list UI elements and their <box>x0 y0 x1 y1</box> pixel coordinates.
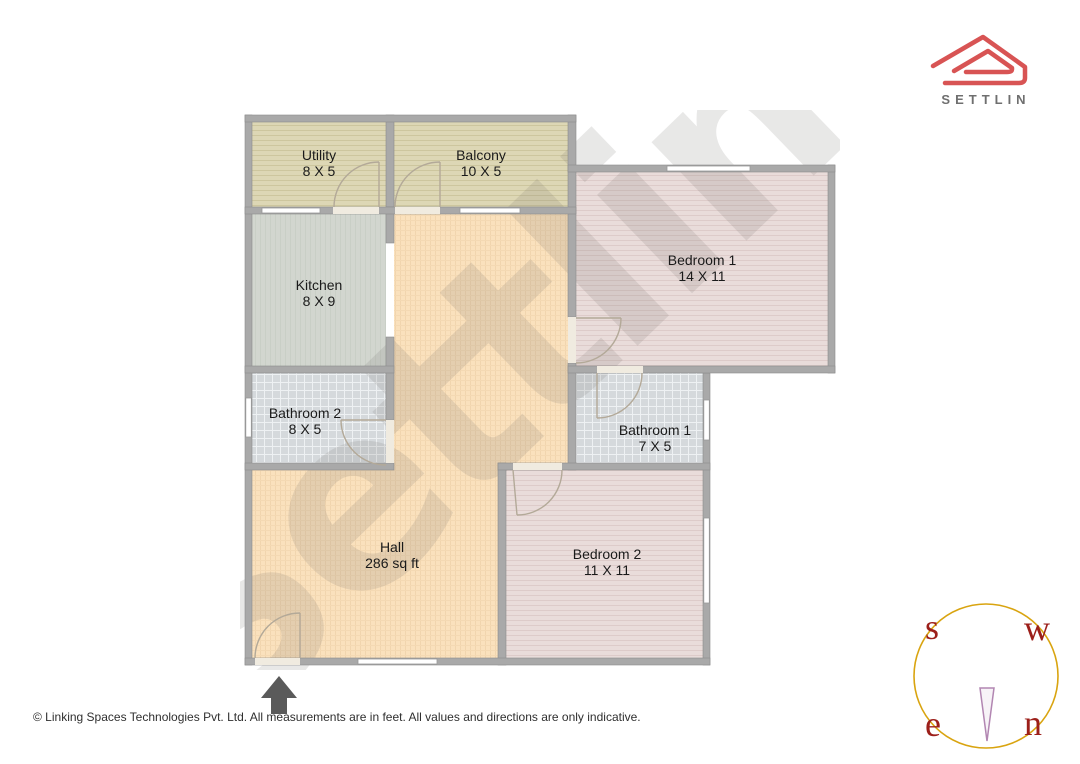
settlin-roof-logo-icon <box>930 34 1042 96</box>
label-utility-dims: 8 X 5 <box>303 163 336 179</box>
logo-outer-roof <box>933 37 1025 83</box>
wall-bedroom1-right <box>828 165 835 373</box>
door-gap-bathroom1 <box>597 366 643 373</box>
wall-corridor-right-upper <box>568 115 576 317</box>
door-gap-utility <box>333 207 379 214</box>
label-bathroom1-dims: 7 X 5 <box>639 438 672 454</box>
wall-kitchen-bottom <box>245 366 394 373</box>
wall-utility-balcony <box>386 115 394 214</box>
door-gap-bedroom1 <box>568 317 576 363</box>
label-hall-dims: 286 sq ft <box>365 555 419 571</box>
label-balcony: Balcony <box>456 147 506 163</box>
wall-bathroom2-bottom <box>245 463 394 470</box>
wall-corridor-right-lower <box>568 363 576 470</box>
label-bedroom1: Bedroom 1 <box>668 252 737 268</box>
north-arrow-shape <box>261 676 297 714</box>
compass: s w e n <box>903 593 1075 763</box>
door-gap-balcony <box>395 207 440 214</box>
label-bathroom2-dims: 8 X 5 <box>289 421 322 437</box>
door-gap-bedroom2 <box>513 463 562 470</box>
brand-name: SETTLIN <box>930 92 1042 107</box>
window-hall <box>358 659 437 664</box>
label-kitchen: Kitchen <box>296 277 343 293</box>
wall-outer-left <box>245 115 252 665</box>
wall-bathroom2-right <box>386 337 394 420</box>
door-gap-bathroom2 <box>386 420 394 463</box>
compass-needle-icon <box>980 688 994 741</box>
label-bathroom1: Bathroom 1 <box>619 422 692 438</box>
compass-letter-n: n <box>1024 703 1042 743</box>
compass-letter-e: e <box>925 704 941 744</box>
compass-letter-s: s <box>925 607 939 647</box>
wall-hall-bedroom2 <box>498 463 506 665</box>
window-bedroom2 <box>704 518 710 603</box>
compass-letter-w: w <box>1024 608 1050 648</box>
floor-plan-page: SETTLIN <box>0 0 1080 764</box>
label-balcony-dims: 10 X 5 <box>461 163 502 179</box>
label-hall: Hall <box>380 539 404 555</box>
footer-disclaimer: © Linking Spaces Technologies Pvt. Ltd. … <box>33 710 641 724</box>
label-bathroom2: Bathroom 2 <box>269 405 342 421</box>
label-bedroom2: Bedroom 2 <box>573 546 642 562</box>
label-utility: Utility <box>302 147 336 163</box>
window-bedroom1 <box>667 166 750 171</box>
wall-outer-top <box>245 115 576 122</box>
label-bedroom1-dims: 14 X 11 <box>678 268 725 284</box>
window-balcony <box>460 208 520 213</box>
wall-outer-bottom <box>245 658 710 665</box>
door-gap-entrance <box>255 658 300 665</box>
window-utility <box>262 208 320 213</box>
window-bathroom2 <box>246 398 252 437</box>
label-bedroom2-dims: 11 X 11 <box>584 562 630 578</box>
floor-plan: Settlin <box>240 110 840 670</box>
window-bathroom1 <box>704 400 710 440</box>
label-kitchen-dims: 8 X 9 <box>303 293 336 309</box>
